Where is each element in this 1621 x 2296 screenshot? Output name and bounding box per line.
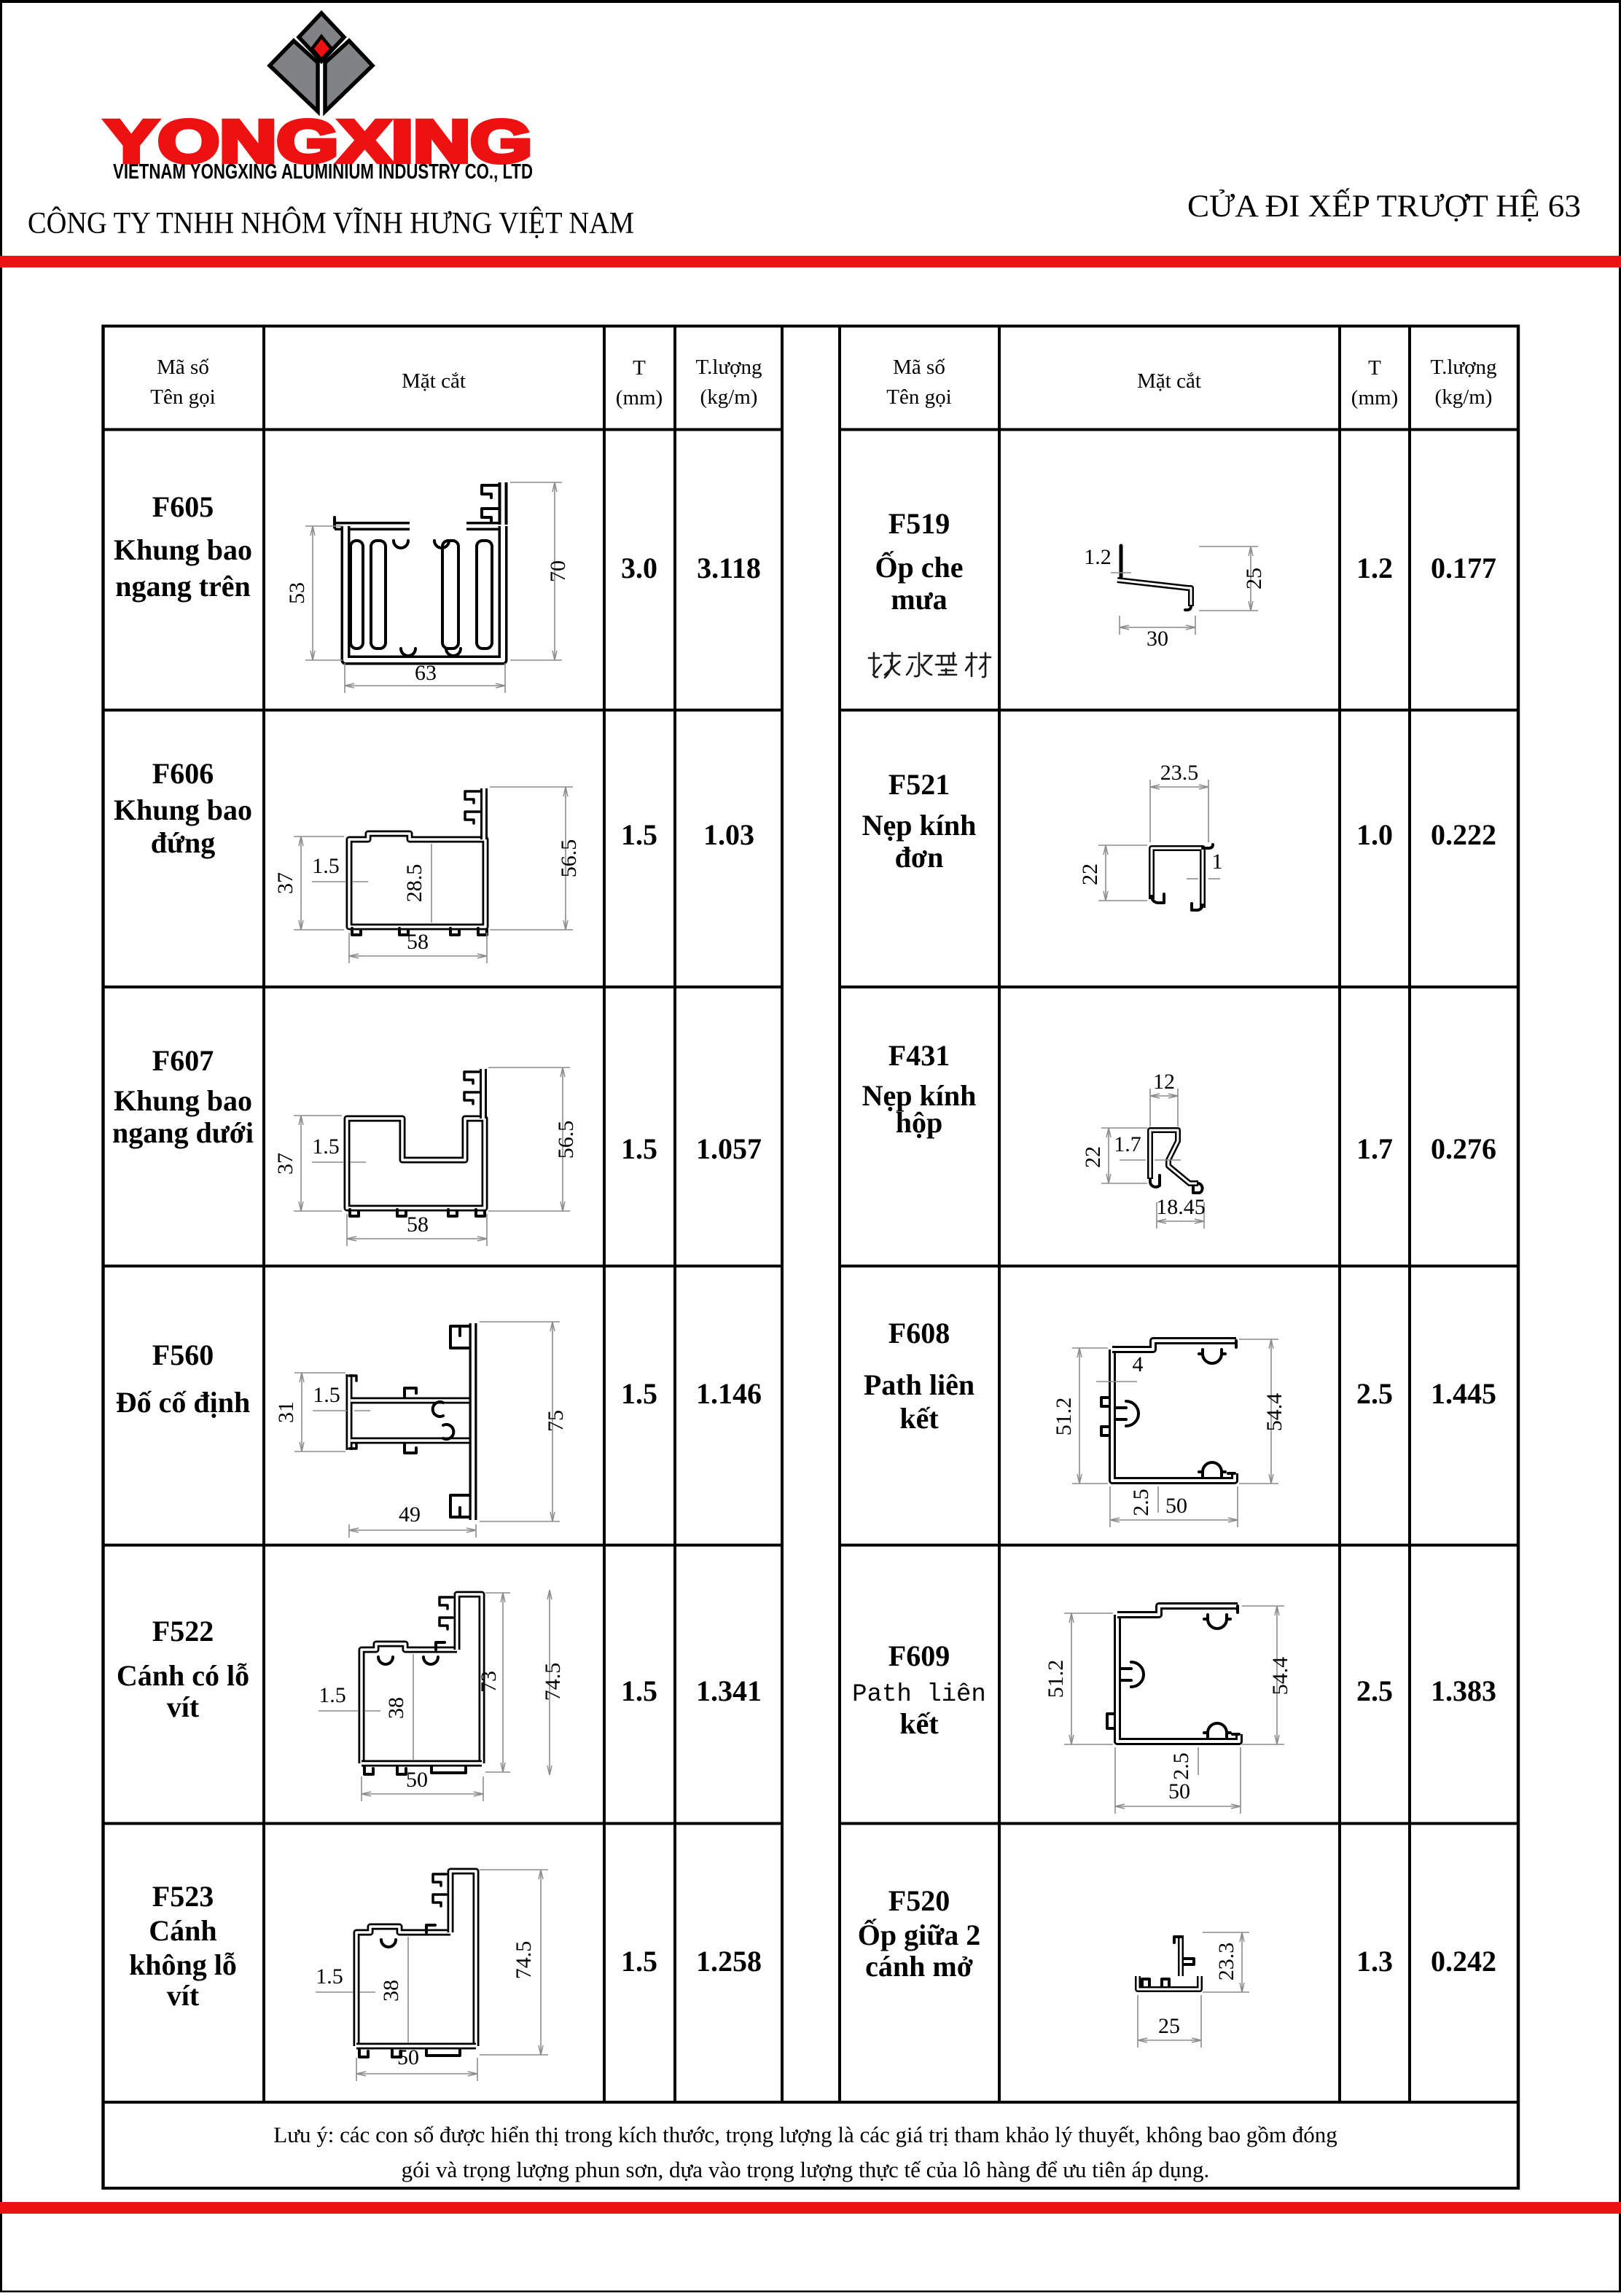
svg-text:37: 37 <box>273 872 297 894</box>
svg-text:73: 73 <box>477 1671 501 1693</box>
svg-text:31: 31 <box>274 1401 298 1423</box>
svg-text:51.2: 51.2 <box>1052 1398 1076 1436</box>
svg-text:F431: F431 <box>888 1039 950 1072</box>
svg-text:0.222: 0.222 <box>1431 818 1496 851</box>
svg-text:T.lượng: T.lượng <box>1431 356 1497 379</box>
svg-text:vít: vít <box>167 1979 200 2012</box>
svg-text:54.4: 54.4 <box>1262 1393 1286 1432</box>
svg-text:Path liên: Path liên <box>852 1681 986 1709</box>
svg-text:Cánh có lỗ: Cánh có lỗ <box>117 1659 249 1692</box>
svg-text:Mặt cắt: Mặt cắt <box>1137 369 1201 393</box>
svg-text:F609: F609 <box>888 1639 950 1672</box>
svg-text:Ốp che: Ốp che <box>875 550 963 584</box>
svg-text:ngang dưới: ngang dưới <box>112 1116 254 1149</box>
svg-text:(kg/m): (kg/m) <box>1435 385 1493 409</box>
svg-text:hộp: hộp <box>896 1106 943 1139</box>
svg-text:1.2: 1.2 <box>1356 552 1393 584</box>
svg-text:50: 50 <box>1168 1779 1190 1803</box>
svg-text:23.5: 23.5 <box>1160 761 1199 785</box>
svg-text:22: 22 <box>1081 1146 1105 1168</box>
svg-text:1.258: 1.258 <box>696 1945 762 1978</box>
svg-text:gói và trọng lượng phun sơn, d: gói và trọng lượng phun sơn, dựa vào trọ… <box>402 2157 1210 2182</box>
svg-text:74.5: 74.5 <box>541 1663 565 1701</box>
svg-text:58: 58 <box>407 930 429 954</box>
svg-text:2.5: 2.5 <box>1356 1674 1393 1707</box>
svg-text:50: 50 <box>406 1768 428 1792</box>
svg-text:2.5: 2.5 <box>1169 1752 1193 1780</box>
svg-text:Mã số: Mã số <box>157 356 209 379</box>
svg-text:1: 1 <box>1212 850 1223 874</box>
svg-text:(mm): (mm) <box>1351 386 1398 410</box>
svg-text:1.383: 1.383 <box>1431 1674 1496 1707</box>
svg-text:F605: F605 <box>152 490 214 523</box>
svg-text:CÔNG TY TNHH NHÔM VĨNH HƯNG VI: CÔNG TY TNHH NHÔM VĨNH HƯNG VIỆT NAM <box>28 206 634 240</box>
svg-text:VIETNAM YONGXING ALUMINIUM IND: VIETNAM YONGXING ALUMINIUM INDUSTRY CO.,… <box>113 160 533 184</box>
svg-text:F520: F520 <box>888 1884 950 1917</box>
svg-text:Nẹp kính: Nẹp kính <box>862 809 977 842</box>
svg-text:(mm): (mm) <box>616 386 663 410</box>
svg-text:(kg/m): (kg/m) <box>700 385 758 409</box>
svg-text:1.341: 1.341 <box>696 1674 762 1707</box>
svg-text:38: 38 <box>384 1697 408 1719</box>
svg-text:12: 12 <box>1153 1070 1175 1094</box>
svg-text:Tên gọi: Tên gọi <box>886 385 951 409</box>
svg-text:Khung bao: Khung bao <box>114 1084 252 1117</box>
svg-text:1.5: 1.5 <box>319 1683 346 1707</box>
svg-text:1.5: 1.5 <box>313 1383 340 1407</box>
svg-text:F521: F521 <box>888 768 950 801</box>
svg-text:1.5: 1.5 <box>621 1674 657 1707</box>
svg-text:1.0: 1.0 <box>1356 818 1393 851</box>
svg-text:1.146: 1.146 <box>696 1377 762 1410</box>
svg-text:3.118: 3.118 <box>697 552 761 584</box>
svg-text:T: T <box>1368 356 1381 380</box>
svg-text:ngang trên: ngang trên <box>115 570 251 603</box>
svg-text:1.5: 1.5 <box>312 854 340 878</box>
svg-text:49: 49 <box>399 1502 421 1527</box>
svg-text:1.057: 1.057 <box>696 1132 762 1165</box>
svg-text:63: 63 <box>415 661 437 685</box>
svg-text:25: 25 <box>1242 568 1266 589</box>
svg-text:1.7: 1.7 <box>1114 1132 1141 1156</box>
svg-text:1.5: 1.5 <box>316 1964 343 1989</box>
svg-text:50: 50 <box>397 2045 419 2069</box>
svg-text:1.3: 1.3 <box>1356 1945 1393 1978</box>
svg-text:75: 75 <box>544 1410 568 1432</box>
svg-text:F607: F607 <box>152 1044 214 1077</box>
svg-text:56.5: 56.5 <box>557 839 581 878</box>
svg-text:37: 37 <box>273 1153 297 1175</box>
svg-text:28.5: 28.5 <box>402 864 426 903</box>
svg-text:4: 4 <box>1133 1352 1144 1376</box>
svg-text:F608: F608 <box>888 1317 950 1349</box>
svg-text:18.45: 18.45 <box>1156 1195 1206 1219</box>
svg-text:vít: vít <box>167 1690 200 1723</box>
svg-text:cánh mở: cánh mở <box>865 1950 973 1983</box>
svg-text:23.3: 23.3 <box>1214 1943 1238 1981</box>
svg-text:3.0: 3.0 <box>621 552 657 584</box>
svg-text:T: T <box>633 356 646 380</box>
svg-text:51.2: 51.2 <box>1044 1660 1068 1699</box>
svg-text:74.5: 74.5 <box>512 1941 536 1980</box>
svg-text:25: 25 <box>1158 2014 1180 2038</box>
svg-text:50: 50 <box>1165 1494 1187 1518</box>
svg-text:Path liên: Path liên <box>864 1368 974 1401</box>
svg-text:Lưu ý: các con số được hiển th: Lưu ý: các con số được hiển thị trong kí… <box>273 2122 1337 2147</box>
svg-text:đứng: đứng <box>151 826 216 859</box>
svg-text:0.276: 0.276 <box>1431 1132 1496 1165</box>
svg-text:Khung bao: Khung bao <box>114 533 252 566</box>
svg-text:1.5: 1.5 <box>621 818 657 851</box>
svg-text:58: 58 <box>407 1212 429 1237</box>
svg-text:1.7: 1.7 <box>1356 1132 1393 1165</box>
svg-text:Mặt cắt: Mặt cắt <box>402 369 466 393</box>
svg-text:T.lượng: T.lượng <box>696 356 762 379</box>
svg-text:1.5: 1.5 <box>312 1135 340 1159</box>
svg-text:Mã số: Mã số <box>893 356 945 379</box>
svg-text:kết: kết <box>899 1402 939 1435</box>
svg-text:kết: kết <box>899 1707 939 1740</box>
svg-text:F519: F519 <box>888 507 950 540</box>
svg-text:2.5: 2.5 <box>1356 1377 1393 1410</box>
svg-text:54.4: 54.4 <box>1268 1657 1292 1696</box>
svg-text:22: 22 <box>1078 863 1102 885</box>
svg-text:1.5: 1.5 <box>621 1132 657 1165</box>
svg-text:F560: F560 <box>152 1339 214 1371</box>
svg-text:1.445: 1.445 <box>1431 1377 1496 1410</box>
svg-text:1.03: 1.03 <box>703 818 754 851</box>
svg-text:53: 53 <box>285 582 309 604</box>
svg-text:2.5: 2.5 <box>1129 1489 1153 1516</box>
svg-text:Khung bao: Khung bao <box>114 794 252 826</box>
svg-text:0.177: 0.177 <box>1431 552 1496 584</box>
svg-text:1.5: 1.5 <box>621 1377 657 1410</box>
svg-text:CỬA ĐI XẾP TRƯỢT HỆ 63: CỬA ĐI XẾP TRƯỢT HỆ 63 <box>1187 189 1581 224</box>
svg-text:F523: F523 <box>152 1880 214 1913</box>
svg-text:1.2: 1.2 <box>1084 545 1112 569</box>
svg-text:70: 70 <box>546 560 570 582</box>
svg-text:không lỗ: không lỗ <box>129 1948 237 1981</box>
svg-text:mưa: mưa <box>891 583 947 616</box>
svg-text:F606: F606 <box>152 757 214 790</box>
svg-text:Đố cố định: Đố cố định <box>116 1386 251 1419</box>
svg-text:30: 30 <box>1147 627 1168 651</box>
svg-text:Ốp giữa 2: Ốp giữa 2 <box>858 1918 980 1951</box>
svg-text:56.5: 56.5 <box>554 1121 578 1159</box>
svg-text:đơn: đơn <box>895 841 944 874</box>
svg-text:0.242: 0.242 <box>1431 1945 1496 1978</box>
svg-text:38: 38 <box>379 1980 403 2002</box>
svg-text:F522: F522 <box>152 1615 214 1647</box>
svg-text:1.5: 1.5 <box>621 1945 657 1978</box>
svg-text:Tên gọi: Tên gọi <box>150 385 215 409</box>
svg-text:Cánh: Cánh <box>149 1914 216 1947</box>
